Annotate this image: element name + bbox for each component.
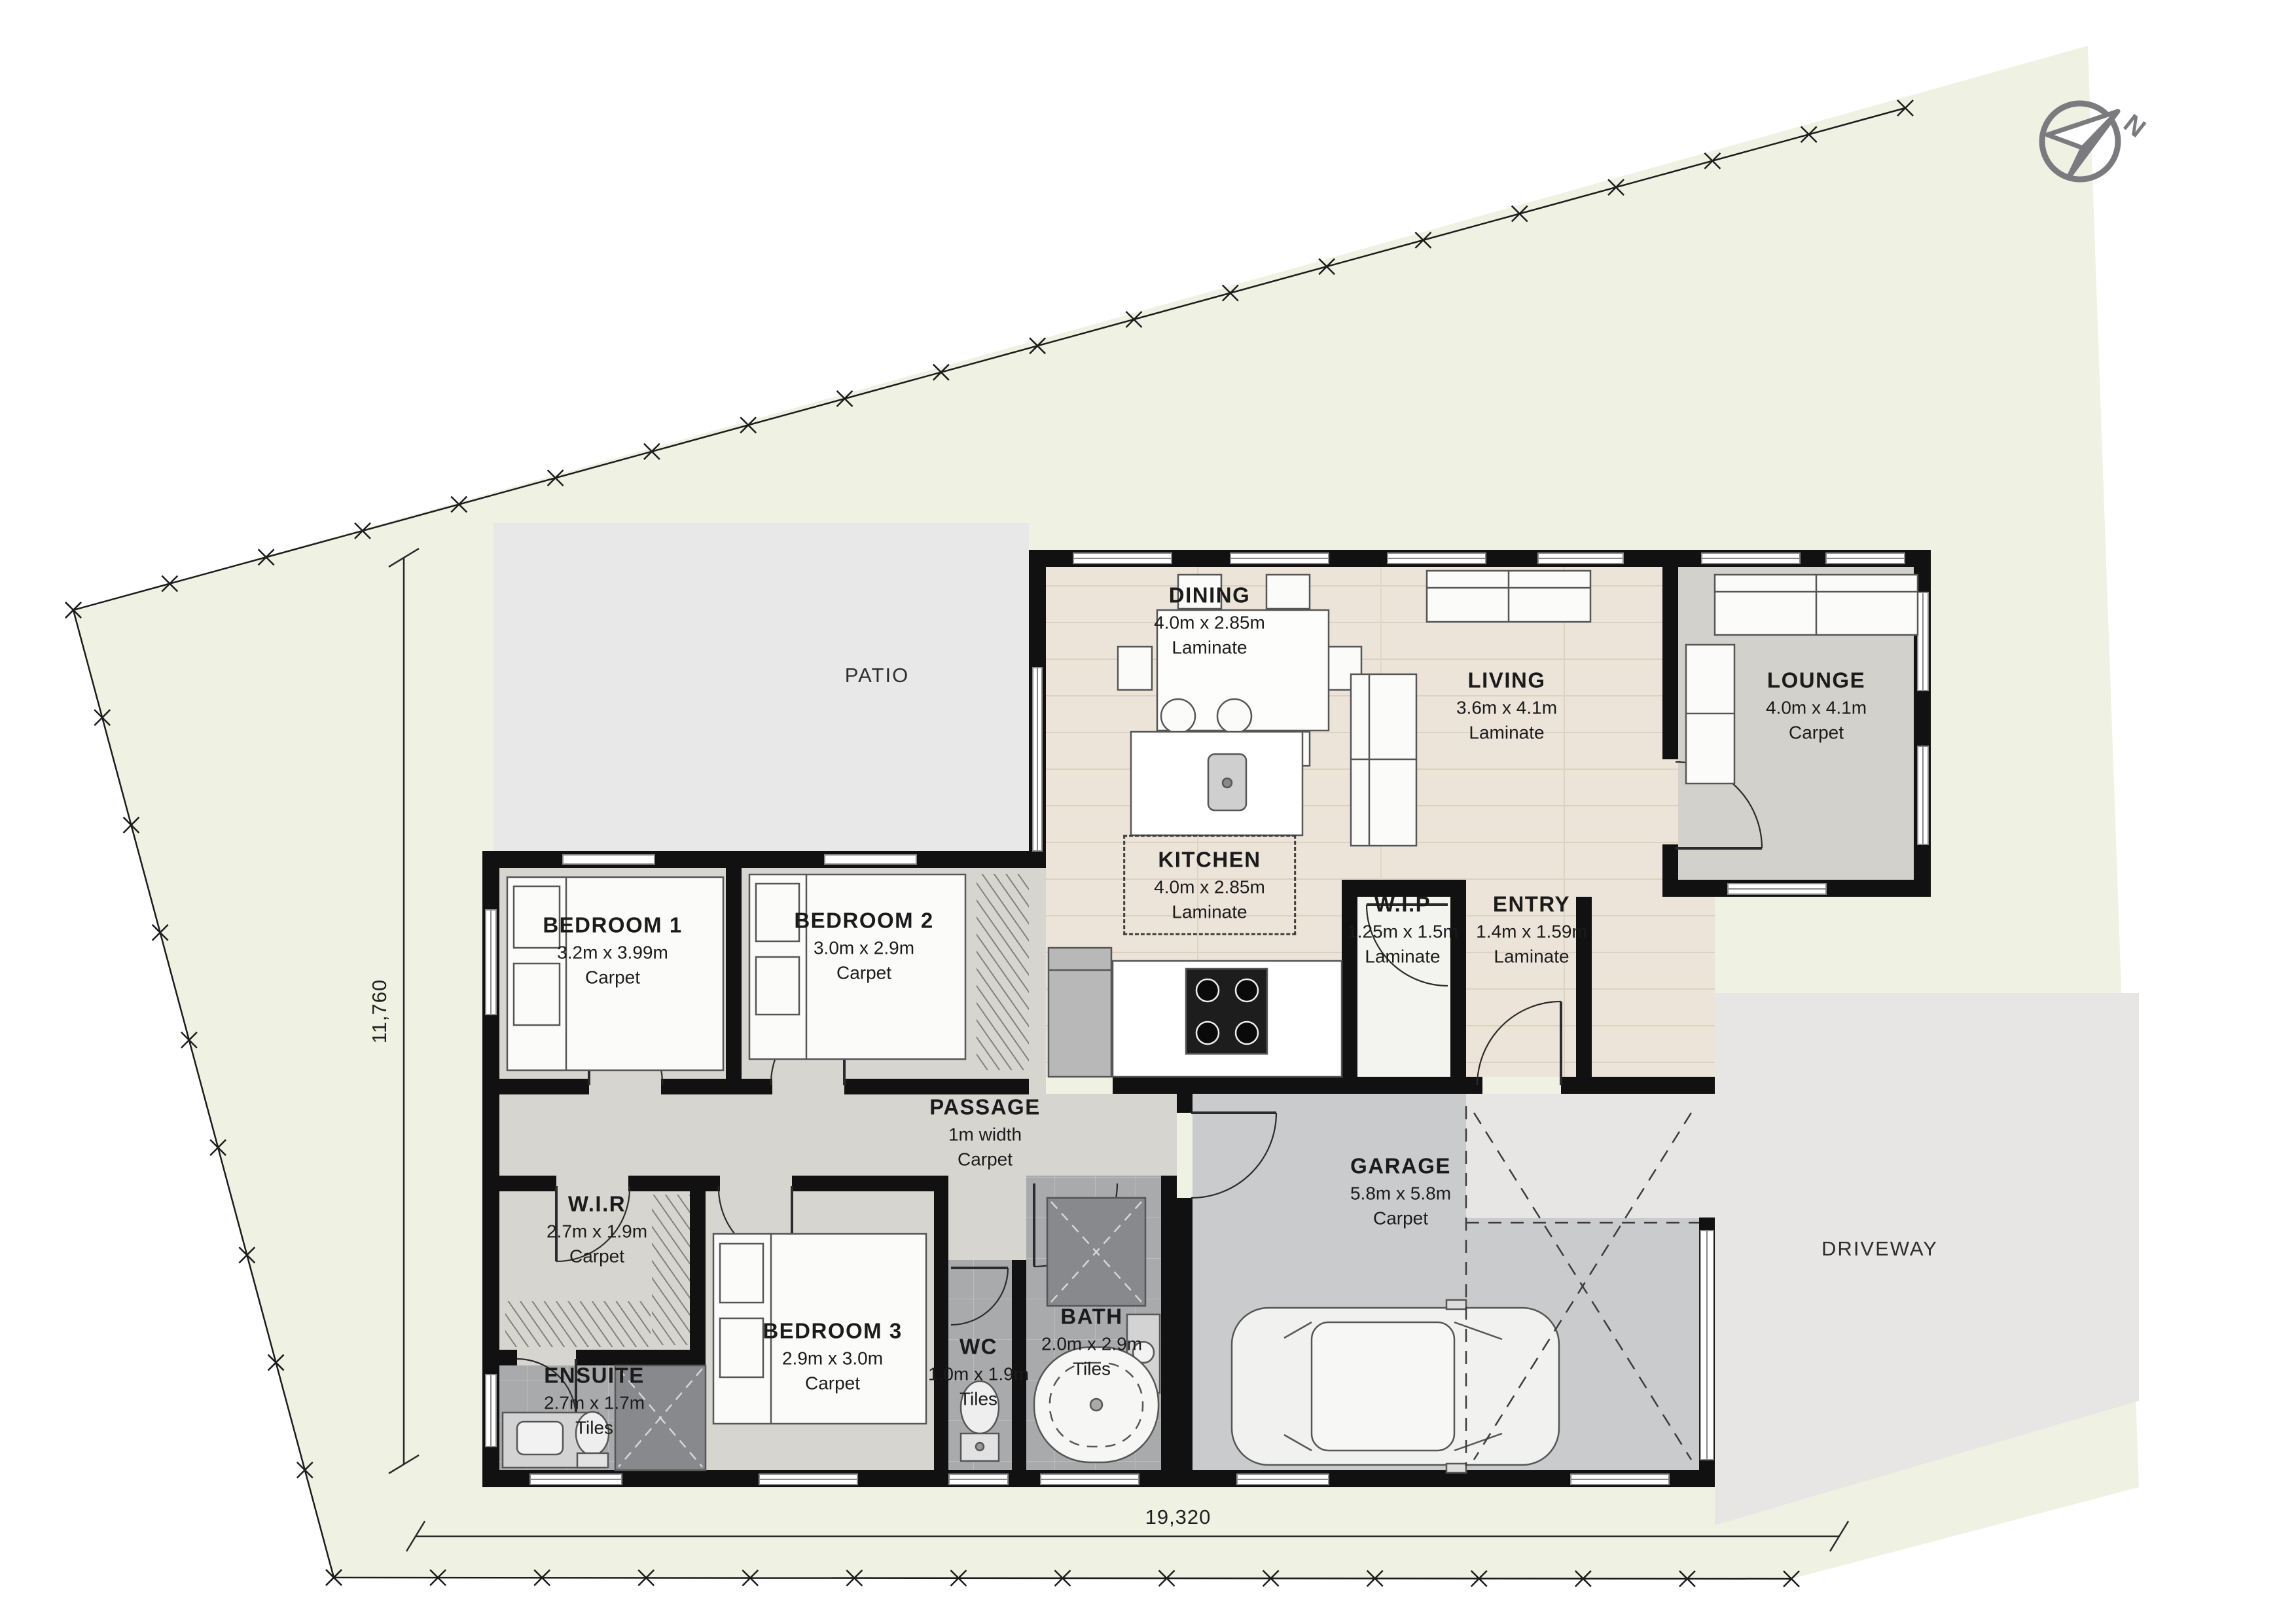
room-label-garage: GARAGE 5.8m x 5.8m Carpet: [1350, 1154, 1451, 1229]
patio-surface: [493, 523, 1029, 851]
passage-floor: [1046, 1094, 1177, 1176]
room-label-lounge: LOUNGE 4.0m x 4.1m Carpet: [1766, 668, 1867, 744]
dimension-label-left: 11,760: [368, 979, 391, 1044]
room-label-bedroom2: BEDROOM 2 3.0m x 2.9m Carpet: [794, 909, 933, 984]
wir-wardrobe-hatch-right: [652, 1195, 690, 1345]
room-label-bedroom3: BEDROOM 3 2.9m x 3.0m Carpet: [762, 1319, 902, 1394]
room-label-entry: ENTRY 1.4m x 1.59m Laminate: [1476, 892, 1587, 967]
room-label-dining: DINING 4.0m x 2.85m Laminate: [1154, 583, 1265, 659]
area-label-patio: PATIO: [845, 664, 909, 687]
wir-wardrobe-hatch-bottom: [505, 1301, 651, 1347]
dimension-label-bottom: 19,320: [1145, 1506, 1211, 1529]
room-label-wir: W.I.R 2.7m x 1.9m Carpet: [547, 1192, 647, 1267]
area-label-driveway: DRIVEWAY: [1821, 1237, 1938, 1261]
room-label-bath: BATH 2.0m x 2.9m Tiles: [1041, 1305, 1142, 1380]
floor-plan-drawing: N: [0, 0, 2296, 1624]
room-label-wip: W.I.P 1.25m x 1.5m Laminate: [1347, 892, 1458, 967]
floor-plan-canvas: N DINING 4.0m x 2.85m Laminate LIVING 3.…: [0, 0, 2296, 1624]
porch-surface: [1466, 1094, 1715, 1218]
room-label-wc: WC 1.0m x 1.9m Tiles: [928, 1335, 1029, 1410]
room-label-kitchen: KITCHEN 4.0m x 2.85m Laminate: [1123, 835, 1296, 935]
room-label-living: LIVING 3.6m x 4.1m Laminate: [1456, 668, 1557, 744]
bedroom2-wardrobe-hatch: [977, 874, 1029, 1070]
car: [1232, 1300, 1559, 1473]
room-label-bedroom1: BEDROOM 1 3.2m x 3.99m Carpet: [543, 913, 682, 988]
room-label-ensuite: ENSUITE 2.7m x 1.7m Tiles: [544, 1363, 645, 1439]
room-label-passage: PASSAGE 1m width Carpet: [929, 1095, 1040, 1170]
north-label: N: [2118, 109, 2151, 143]
kitchen-counter: [1049, 948, 1342, 1077]
